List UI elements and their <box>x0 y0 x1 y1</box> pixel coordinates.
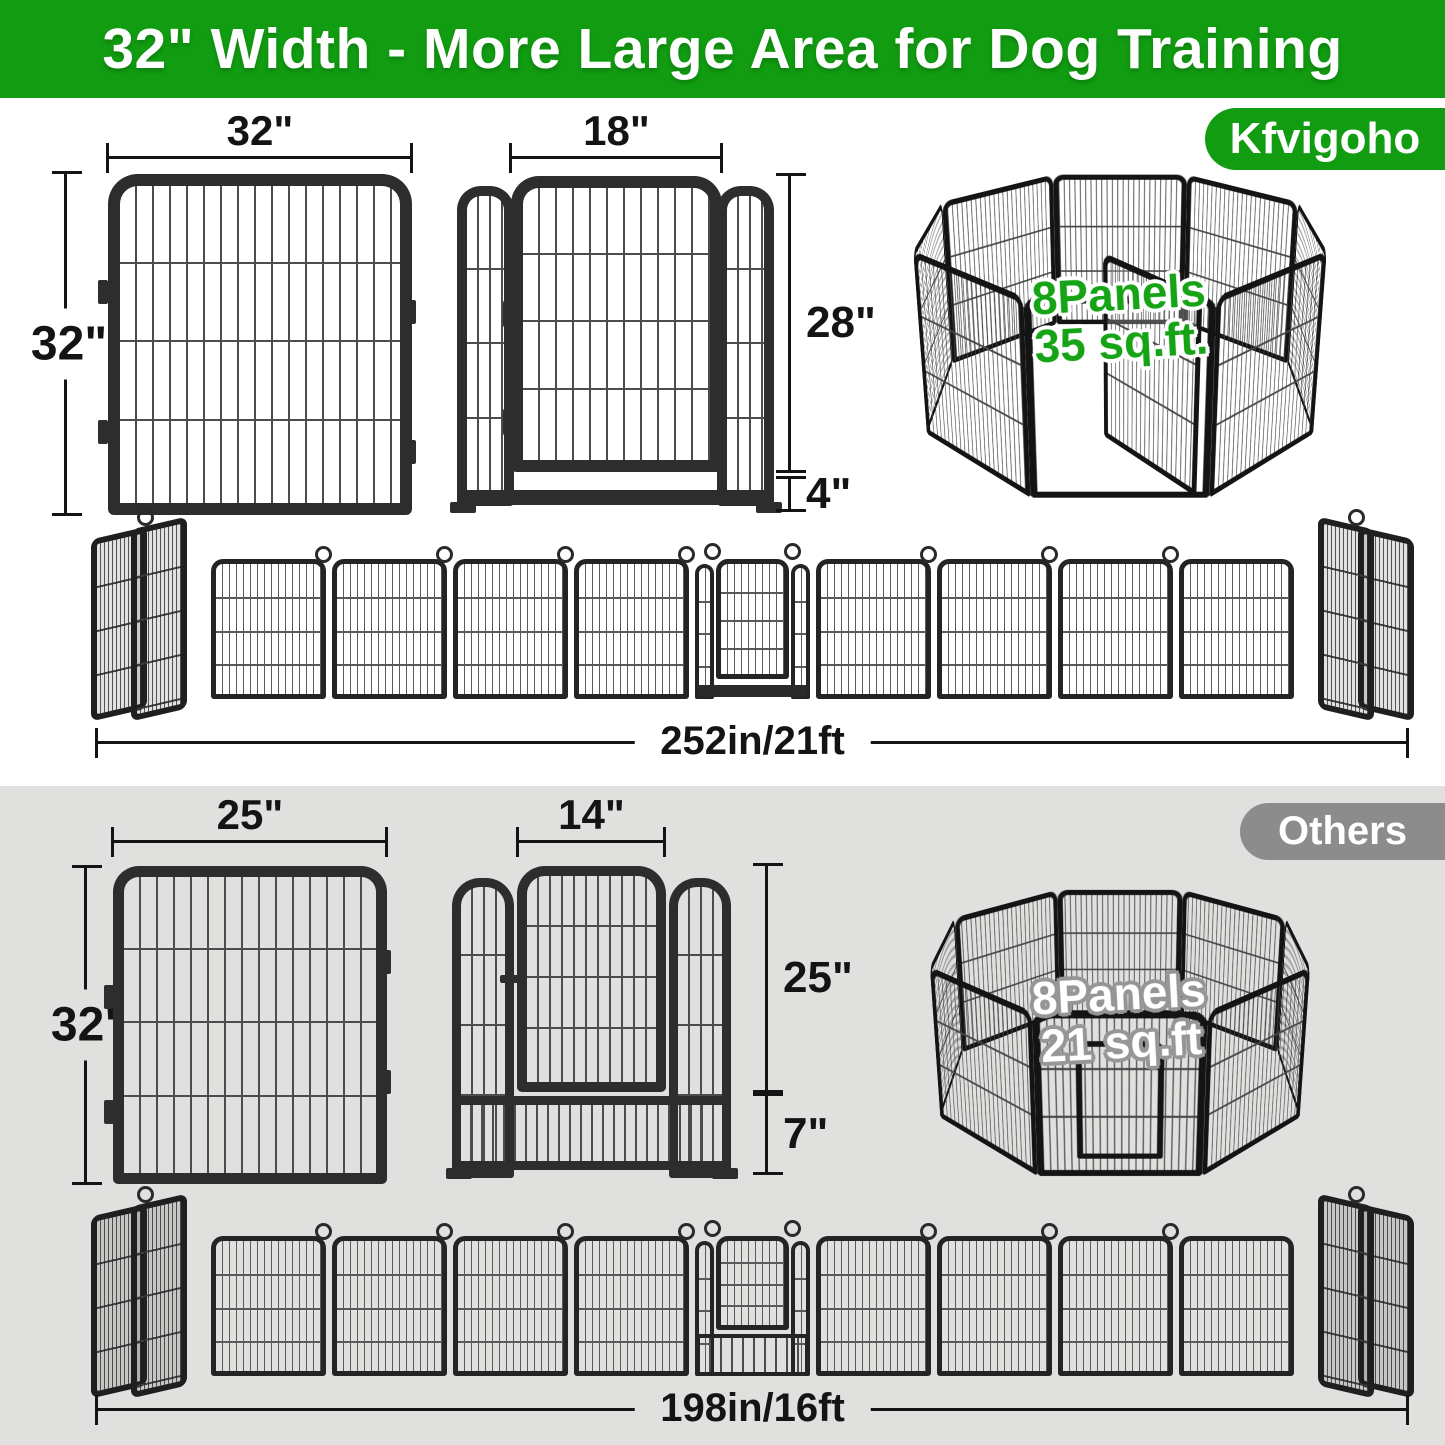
connector-loop <box>1162 1223 1179 1240</box>
connector-loop <box>1041 546 1058 563</box>
others-door-diagram <box>517 866 666 1092</box>
connector-tab <box>104 1100 114 1124</box>
panel-foot <box>712 1168 738 1179</box>
connector-loop <box>678 1223 695 1240</box>
connector-tab <box>406 440 416 464</box>
connector-loop <box>436 546 453 563</box>
connector-loop <box>315 546 332 563</box>
door-bottom-rail <box>698 685 807 697</box>
door-hinge <box>503 300 519 328</box>
connector-tab <box>406 300 416 324</box>
others-door-width-dimension: 14" <box>518 840 665 843</box>
connector-loop <box>784 543 801 560</box>
kfvigoho-panel-diagram <box>108 174 412 515</box>
others-panel-diagram <box>113 866 387 1184</box>
connector-loop <box>678 546 695 563</box>
header-banner: 32" Width - More Large Area for Dog Trai… <box>0 0 1445 98</box>
fence-end-panels <box>1302 1198 1414 1398</box>
connector-loop <box>557 1223 574 1240</box>
connector-loop <box>920 1223 937 1240</box>
fence-door <box>716 1236 790 1330</box>
fence-row-panels <box>211 1236 1294 1376</box>
kfvigoho-door-diagram <box>511 176 722 472</box>
kfvigoho-row-length-dimension: 252in/21ft <box>97 741 1408 744</box>
dimension-label: 32" <box>27 308 111 379</box>
kfvigoho-panel-width-dimension: 32" <box>108 156 412 159</box>
dimension-label: 32" <box>227 107 294 155</box>
others-clearance-dimension: 7" <box>765 1094 768 1174</box>
dimension-label: 25" <box>783 953 853 1003</box>
others-pen-label: 8Panels 21 sq.ft <box>998 964 1243 1073</box>
connector-tab <box>381 1070 391 1094</box>
dimension-label: 14" <box>558 791 625 839</box>
others-door-height-dimension: 25" <box>765 864 768 1092</box>
connector-loop <box>137 1186 154 1203</box>
fence-panel <box>453 1236 568 1376</box>
dimension-label: 198in/16ft <box>634 1386 871 1431</box>
fence-panel <box>131 1194 187 1399</box>
fence-panel <box>1058 1236 1173 1376</box>
fence-panel <box>1058 559 1173 699</box>
fence-end-panels <box>91 1198 203 1398</box>
bottom-rail <box>457 490 774 505</box>
kfvigoho-panel-height-dimension: 32" <box>64 172 67 515</box>
kfvigoho-pen-label: 8Panels 35 sq.ft. <box>998 264 1243 373</box>
panel-foot <box>446 1168 472 1179</box>
fence-panel <box>816 1236 931 1376</box>
door-hinge <box>503 408 519 436</box>
dimension-label: 4" <box>806 469 851 519</box>
connector-loop <box>784 1220 801 1237</box>
door-side-post <box>695 564 715 699</box>
fence-end-panels <box>1302 521 1414 721</box>
connector-loop <box>557 546 574 563</box>
fence-panel <box>332 559 447 699</box>
fence-panel <box>937 559 1052 699</box>
connector-loop <box>436 1223 453 1240</box>
kfvigoho-clearance-dimension: 4" <box>788 477 791 511</box>
fence-door-panel <box>695 559 810 699</box>
connector-tab <box>98 280 108 304</box>
connector-loop <box>137 509 154 526</box>
others-fence-row <box>95 1220 1410 1380</box>
connector-loop <box>704 1220 721 1237</box>
connector-tab <box>98 420 108 444</box>
fence-panel <box>574 559 689 699</box>
kfvigoho-fence-row <box>95 543 1410 703</box>
fence-end-panels <box>91 521 203 721</box>
banner-title: 32" Width - More Large Area for Dog Trai… <box>102 16 1342 82</box>
dimension-label: 25" <box>217 791 284 839</box>
connector-loop <box>704 543 721 560</box>
fence-row-panels <box>211 559 1294 699</box>
product-comparison-infographic: 32" Width - More Large Area for Dog Trai… <box>0 0 1445 1445</box>
others-row-length-dimension: 198in/16ft <box>97 1408 1408 1411</box>
others-panel-height-dimension: 32" <box>84 866 87 1184</box>
connector-loop <box>1348 1186 1365 1203</box>
door-latch <box>500 975 522 983</box>
dimension-label: 7" <box>783 1109 828 1159</box>
kfvigoho-door-height-dimension: 28" <box>788 174 791 472</box>
connector-loop <box>315 1223 332 1240</box>
fence-panel <box>1179 559 1294 699</box>
fence-panel <box>211 1236 326 1376</box>
fence-panel <box>1318 517 1374 722</box>
fence-panel <box>574 1236 689 1376</box>
fence-panel <box>1179 1236 1294 1376</box>
dimension-label: 28" <box>806 298 876 348</box>
kfvigoho-door-width-dimension: 18" <box>511 156 722 159</box>
door-side-panel <box>457 186 514 506</box>
bottom-band <box>452 1096 731 1170</box>
door-side-post <box>791 564 811 699</box>
fence-panel <box>131 517 187 722</box>
connector-tab <box>104 985 114 1009</box>
door-side-panel <box>717 186 774 506</box>
fence-panel <box>332 1236 447 1376</box>
fence-panel <box>1318 1194 1374 1399</box>
fence-door-panel <box>695 1236 810 1376</box>
connector-loop <box>920 546 937 563</box>
fence-panel <box>816 559 931 699</box>
dimension-label: 252in/21ft <box>634 719 871 764</box>
fence-panel <box>453 559 568 699</box>
door-bottom-band <box>696 1334 809 1376</box>
fence-panel <box>937 1236 1052 1376</box>
fence-door <box>716 559 790 679</box>
connector-loop <box>1162 546 1179 563</box>
fence-panel <box>211 559 326 699</box>
dimension-label: 18" <box>583 107 650 155</box>
connector-tab <box>381 950 391 974</box>
others-panel-width-dimension: 25" <box>113 840 387 843</box>
panel-foot <box>450 502 476 513</box>
connector-loop <box>1041 1223 1058 1240</box>
connector-loop <box>1348 509 1365 526</box>
